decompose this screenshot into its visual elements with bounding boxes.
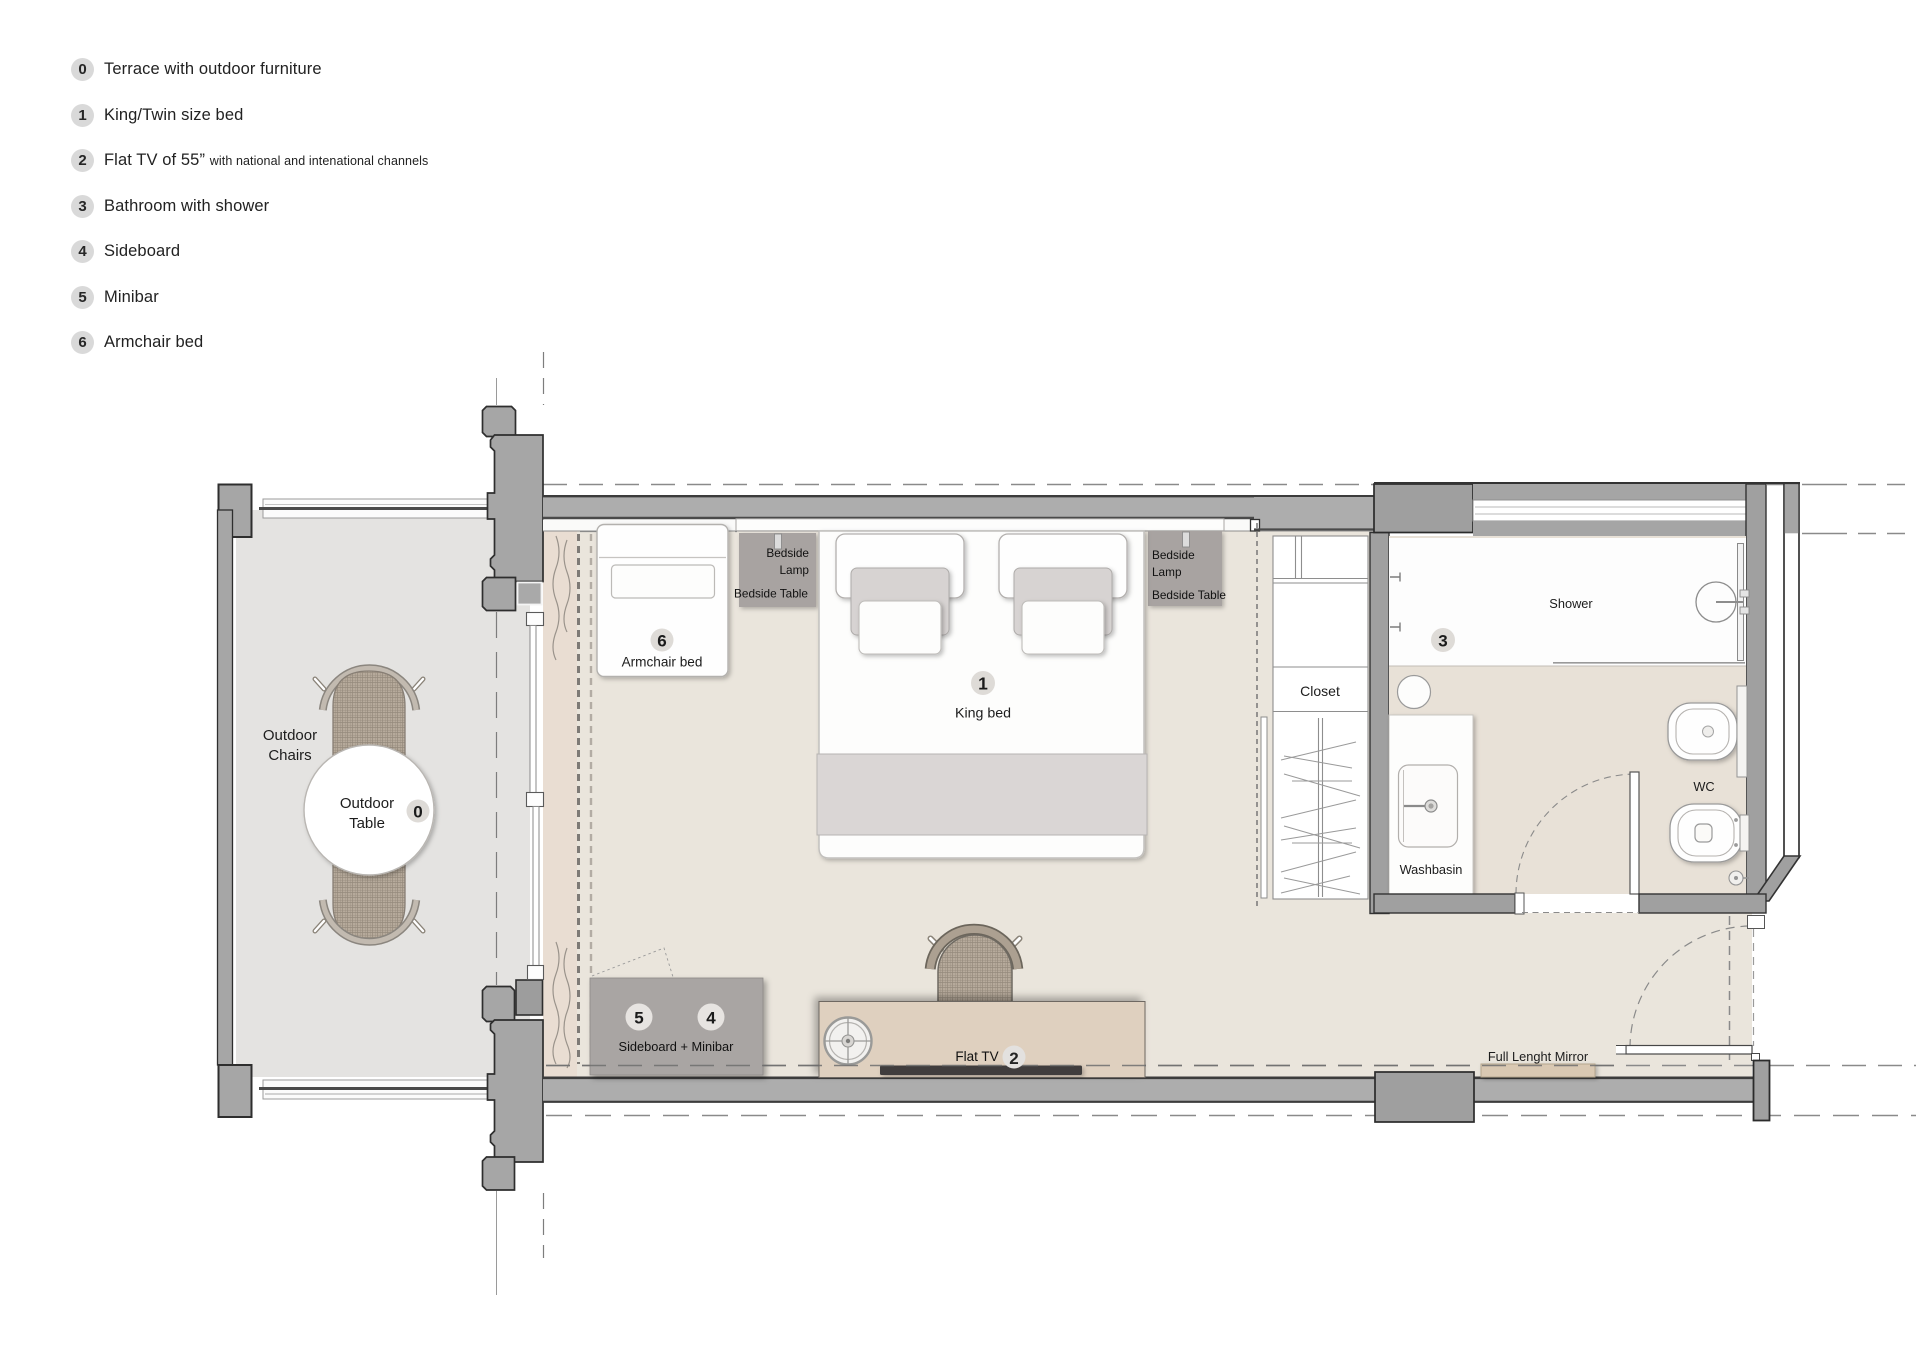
svg-text:Flat TV: Flat TV xyxy=(955,1049,998,1064)
svg-text:Bedside Table: Bedside Table xyxy=(734,587,808,601)
svg-text:Closet: Closet xyxy=(1300,683,1340,699)
svg-text:Sideboard + Minibar: Sideboard + Minibar xyxy=(619,1039,735,1054)
svg-text:2: 2 xyxy=(1009,1049,1018,1068)
svg-text:Outdoor: Outdoor xyxy=(263,727,317,744)
svg-text:Washbasin: Washbasin xyxy=(1400,862,1463,877)
svg-text:Bedside: Bedside xyxy=(1152,548,1195,562)
svg-text:3: 3 xyxy=(1438,632,1447,651)
svg-text:0: 0 xyxy=(413,803,422,822)
svg-text:Shower: Shower xyxy=(1549,596,1593,611)
svg-text:Lamp: Lamp xyxy=(1152,565,1182,579)
svg-text:5: 5 xyxy=(634,1009,643,1028)
svg-text:Bedside Table: Bedside Table xyxy=(1152,588,1226,602)
svg-text:Table: Table xyxy=(349,815,385,832)
svg-text:Bedside: Bedside xyxy=(766,546,809,560)
svg-text:6: 6 xyxy=(657,632,666,651)
svg-text:Full Lenght Mirror: Full Lenght Mirror xyxy=(1488,1049,1589,1064)
svg-text:1: 1 xyxy=(978,674,988,694)
svg-text:4: 4 xyxy=(706,1009,716,1028)
svg-text:Armchair bed: Armchair bed xyxy=(622,655,703,670)
svg-text:Chairs: Chairs xyxy=(268,747,311,764)
svg-text:Outdoor: Outdoor xyxy=(340,795,394,812)
svg-text:King bed: King bed xyxy=(955,706,1011,722)
svg-text:WC: WC xyxy=(1693,779,1714,794)
svg-text:Lamp: Lamp xyxy=(779,563,809,577)
